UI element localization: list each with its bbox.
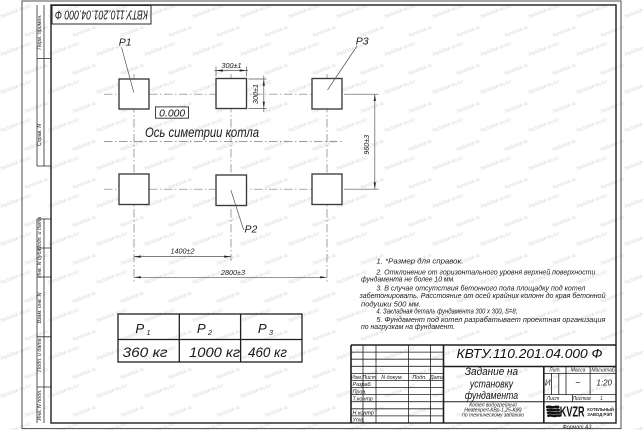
svg-text:Утв.: Утв. — [352, 418, 365, 424]
svg-text:Пров.: Пров. — [353, 389, 367, 395]
svg-text:КОТЕЛЬНЫЙ: КОТЕЛЬНЫЙ — [587, 405, 614, 412]
svg-text:Лит.: Лит. — [548, 368, 561, 374]
svg-text:Ось симетрии котла: Ось симетрии котла — [145, 125, 259, 140]
svg-text:установку: установку — [469, 378, 514, 390]
svg-text:Инв. N дубл.: Инв. N дубл. — [37, 247, 43, 278]
svg-text:по нагрузкам на фундамент.: по нагрузкам на фундамент. — [361, 323, 455, 331]
svg-text:2800±3: 2800±3 — [220, 268, 245, 277]
svg-text:0.000: 0.000 — [159, 108, 185, 119]
svg-text:Лист: Лист — [546, 396, 560, 402]
svg-text:Подп. и дата: Подп. и дата — [37, 217, 43, 250]
svg-text:1: 1 — [600, 396, 603, 402]
svg-text:Т.контр: Т.контр — [353, 396, 373, 402]
svg-text:KVZR: KVZR — [560, 404, 585, 421]
svg-text:1400±2: 1400±2 — [171, 247, 195, 256]
svg-text:ЗАВОД РЭП: ЗАВОД РЭП — [587, 412, 612, 417]
svg-text:360 кг: 360 кг — [123, 345, 168, 360]
svg-text:Изм.Лист: Изм.Лист — [351, 375, 377, 381]
svg-text:4. Закладная деталь фундамента: 4. Закладная деталь фундамента 300 х 300… — [376, 308, 517, 316]
svg-text:Масса: Масса — [571, 368, 586, 374]
svg-text:Формат А3: Формат А3 — [563, 425, 592, 430]
svg-text:Подп.: Подп. — [412, 375, 426, 381]
svg-text:1000 кг: 1000 кг — [189, 345, 240, 360]
svg-text:Инв. N подл.: Инв. N подл. — [37, 390, 43, 421]
svg-text:300±1: 300±1 — [251, 84, 260, 104]
svg-text:Перв. примен.: Перв. примен. — [37, 14, 43, 49]
svg-text:N докум.: N докум. — [381, 375, 403, 381]
svg-text:Взам. инв. N: Взам. инв. N — [37, 292, 43, 323]
svg-text:фундамента: фундамента — [465, 390, 518, 402]
svg-text:КВТУ.110.201.04.000 Ф: КВТУ.110.201.04.000 Ф — [55, 8, 148, 22]
svg-text:Н.контр: Н.контр — [353, 411, 374, 417]
svg-text:1:20: 1:20 — [596, 379, 612, 388]
svg-text:Р2: Р2 — [245, 224, 258, 236]
svg-text:Р1: Р1 — [119, 37, 132, 49]
svg-text:Подп. и дата: Подп. и дата — [37, 338, 43, 371]
svg-text:фундамента не более 10 мм.: фундамента не более 10 мм. — [361, 276, 455, 284]
svg-text:460 кг: 460 кг — [248, 345, 287, 360]
svg-text:Масштаб: Масштаб — [591, 368, 615, 374]
svg-text:забетонировать. Расстояние от: забетонировать. Расстояние от осей крайн… — [359, 292, 606, 300]
svg-text:Разраб.: Разраб. — [353, 382, 373, 388]
svg-text:1. *Размер для справок.: 1. *Размер для справок. — [376, 258, 463, 266]
svg-text:960±3: 960±3 — [362, 135, 371, 155]
svg-text:–: – — [575, 378, 581, 387]
svg-text:300±1: 300±1 — [222, 61, 242, 70]
svg-text:Справ. N: Справ. N — [37, 124, 43, 146]
svg-text:по техническому заданию: по техническому заданию — [462, 412, 524, 418]
svg-text:Задание на: Задание на — [465, 366, 518, 378]
svg-text:И: И — [545, 378, 551, 387]
svg-text:Дата: Дата — [429, 375, 444, 381]
svg-text:Листов: Листов — [571, 396, 591, 402]
svg-text:КВТУ.110.201.04.000 Ф: КВТУ.110.201.04.000 Ф — [457, 347, 603, 361]
svg-text:Р3: Р3 — [356, 35, 369, 47]
